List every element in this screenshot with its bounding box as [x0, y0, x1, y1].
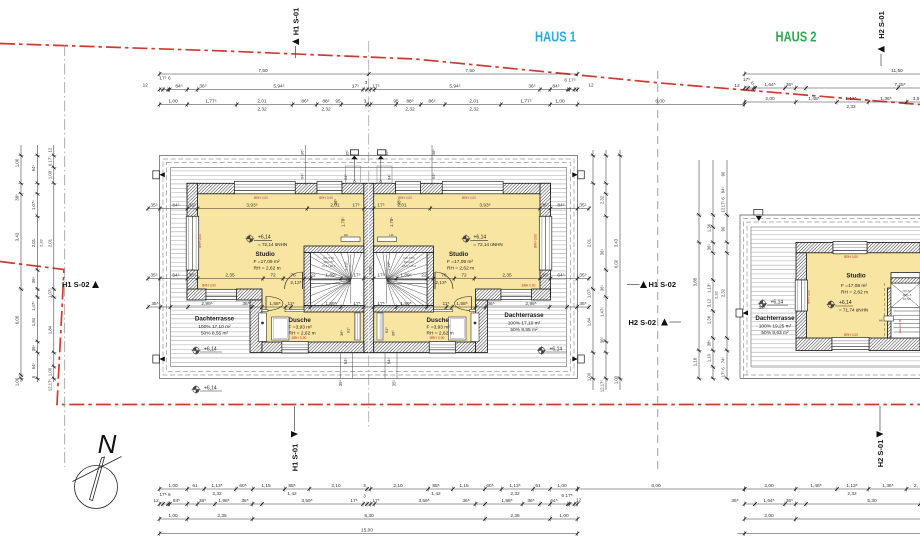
svg-text:2,32: 2,32: [847, 491, 857, 497]
svg-text:HAUS 1: HAUS 1: [535, 30, 576, 46]
svg-text:36⁵: 36⁵: [31, 345, 36, 352]
svg-text:1,13⁵: 1,13⁵: [846, 483, 857, 489]
svg-text:84⁵: 84⁵: [175, 84, 182, 90]
svg-text:2,13⁵: 2,13⁵: [290, 280, 301, 286]
svg-text:12,17⁵: 12,17⁵: [600, 380, 605, 392]
svg-text:1,13⁵: 1,13⁵: [509, 483, 520, 489]
svg-text:BRH 0,00: BRH 0,00: [807, 290, 811, 304]
svg-text:17⁵: 17⁵: [377, 203, 384, 209]
svg-text:1,00: 1,00: [587, 372, 592, 381]
svg-text:H1 S-02: H1 S-02: [62, 280, 90, 289]
svg-text:BRH 3,90: BRH 3,90: [292, 336, 307, 340]
svg-text:HK: HK: [389, 233, 393, 237]
svg-text:F =17,09 m²: F =17,09 m²: [447, 259, 473, 265]
svg-text:5,94⁵: 5,94⁵: [449, 84, 460, 90]
svg-text:BRH 0,00: BRH 0,00: [198, 234, 202, 248]
svg-text:3: 3: [364, 99, 367, 105]
svg-text:64⁵: 64⁵: [387, 358, 392, 365]
svg-text:6,00: 6,00: [655, 99, 665, 105]
svg-text:2,35: 2,35: [510, 513, 520, 519]
svg-text:2,32: 2,32: [39, 238, 44, 247]
svg-text:2,01: 2,01: [469, 99, 479, 105]
svg-text:36⁵: 36⁵: [600, 285, 605, 292]
svg-text:100% 17,10 m²: 100% 17,10 m²: [508, 321, 541, 327]
svg-text:1,89⁵: 1,89⁵: [400, 273, 411, 279]
svg-text:100% 19,25 m²: 100% 19,25 m²: [759, 324, 792, 330]
svg-text:1,47⁵: 1,47⁵: [600, 307, 605, 317]
svg-text:72: 72: [270, 273, 276, 279]
svg-text:16,5 / 25,0: 16,5 / 25,0: [402, 264, 417, 268]
svg-text:38⁵: 38⁵: [707, 340, 712, 347]
svg-text:6,00: 6,00: [15, 315, 20, 324]
svg-text:35⁵: 35⁵: [385, 150, 389, 156]
svg-text:1,00: 1,00: [47, 367, 52, 376]
svg-text:= 72,14 üNHN: = 72,14 üNHN: [474, 242, 503, 247]
svg-text:35⁵: 35⁵: [579, 273, 586, 279]
svg-text:1,00: 1,00: [557, 483, 567, 489]
svg-text:1,15: 1,15: [261, 483, 271, 489]
svg-text:1,58⁵: 1,58⁵: [269, 301, 280, 307]
svg-text:BRH 0,00: BRH 0,00: [319, 196, 333, 200]
svg-text:15,00: 15,00: [361, 528, 373, 534]
svg-text:84⁵: 84⁵: [172, 203, 179, 209]
svg-text:36⁵: 36⁵: [541, 203, 548, 209]
svg-text:64⁵: 64⁵: [31, 165, 36, 172]
svg-text:3,85: 3,85: [693, 277, 698, 286]
svg-text:95: 95: [393, 99, 399, 105]
svg-text:2,35: 2,35: [502, 273, 512, 279]
svg-text:36⁵: 36⁵: [528, 84, 535, 90]
svg-text:2,10: 2,10: [393, 483, 403, 489]
svg-text:3,93⁵: 3,93⁵: [479, 203, 490, 209]
svg-text:36⁵: 36⁵: [31, 277, 36, 284]
svg-text:16,5 / 25,0: 16,5 / 25,0: [321, 264, 336, 268]
svg-text:= 72,14 üNHN: = 72,14 üNHN: [258, 242, 287, 247]
svg-text:36⁵: 36⁵: [199, 84, 206, 90]
svg-text:1,36: 1,36: [707, 315, 712, 324]
svg-text:91⁵: 91⁵: [384, 327, 389, 333]
svg-text:1,00: 1,00: [555, 99, 565, 105]
svg-text:3,93⁵: 3,93⁵: [246, 203, 257, 209]
svg-text:2,32: 2,32: [405, 106, 415, 112]
svg-text:6,00: 6,00: [614, 259, 619, 268]
svg-text:+6,14: +6,14: [550, 346, 563, 352]
svg-text:38⁵: 38⁵: [15, 194, 20, 201]
svg-text:36⁵: 36⁵: [600, 337, 605, 344]
svg-text:35⁵: 35⁵: [759, 305, 766, 310]
svg-text:86⁵: 86⁵: [428, 99, 435, 105]
svg-text:36⁵: 36⁵: [600, 249, 605, 256]
svg-text:36⁵: 36⁵: [189, 273, 196, 279]
svg-text:2,35: 2,35: [225, 273, 235, 279]
svg-text:17⁵: 17⁵: [353, 273, 360, 279]
svg-text:1,89⁵: 1,89⁵: [325, 301, 336, 307]
svg-text:BRH 0,00: BRH 0,00: [844, 255, 858, 259]
svg-text:2,32: 2,32: [321, 106, 331, 112]
svg-text:3: 3: [363, 483, 366, 489]
svg-text:1,48⁵: 1,48⁵: [810, 483, 821, 489]
svg-text:35⁵: 35⁵: [151, 301, 158, 307]
svg-text:17⁵: 17⁵: [377, 273, 384, 279]
svg-text:1,47⁵: 1,47⁵: [31, 301, 36, 311]
svg-text:36⁵: 36⁵: [390, 330, 395, 336]
svg-text:50% 8,55 m²: 50% 8,55 m²: [201, 331, 229, 337]
svg-text:+6,14: +6,14: [474, 235, 487, 241]
svg-text:60⁵: 60⁵: [239, 483, 246, 489]
svg-text:Dachterrasse: Dachterrasse: [195, 316, 235, 323]
svg-text:2,32: 2,32: [600, 195, 605, 204]
svg-text:2,00: 2,00: [764, 513, 774, 519]
svg-text:1,13⁵: 1,13⁵: [211, 483, 222, 489]
svg-text:17⁵ 6: 17⁵ 6: [159, 76, 171, 82]
svg-text:64⁵: 64⁵: [172, 273, 179, 279]
svg-text:3: 3: [365, 80, 368, 86]
svg-text:5,30: 5,30: [867, 498, 877, 504]
svg-text:17⁵: 17⁵: [721, 371, 726, 378]
svg-text:6,00: 6,00: [651, 483, 661, 489]
svg-text:36⁵: 36⁵: [707, 244, 712, 251]
svg-text:2,00: 2,00: [764, 483, 774, 489]
svg-text:36⁵: 36⁵: [199, 498, 206, 504]
svg-text:BRH 0,00: BRH 0,00: [844, 333, 858, 337]
svg-text:6: 6: [751, 81, 754, 87]
svg-text:64⁵: 64⁵: [557, 273, 564, 279]
svg-text:61: 61: [535, 483, 541, 489]
svg-text:1,64⁵: 1,64⁵: [763, 498, 774, 504]
svg-text:88⁵: 88⁵: [288, 483, 295, 489]
svg-text:1,15: 1,15: [459, 483, 469, 489]
svg-text:17⁵: 17⁵: [352, 84, 359, 90]
svg-text:1,89⁵: 1,89⁵: [400, 301, 411, 307]
svg-text:36⁵: 36⁵: [786, 82, 793, 88]
svg-text:35⁵: 35⁵: [731, 498, 738, 504]
svg-text:72: 72: [461, 273, 467, 279]
svg-text:1,00: 1,00: [559, 513, 569, 519]
svg-text:1,00: 1,00: [15, 158, 20, 167]
svg-text:BRH 0,00: BRH 0,00: [462, 196, 476, 200]
svg-text:2,13⁵: 2,13⁵: [435, 280, 446, 286]
svg-text:64⁵: 64⁵: [343, 174, 348, 180]
svg-text:3,43: 3,43: [614, 238, 619, 247]
svg-text:22: 22: [421, 273, 427, 279]
svg-text:2,00: 2,00: [765, 96, 775, 102]
svg-text:12: 12: [576, 498, 582, 504]
svg-text:1,36⁵: 1,36⁵: [882, 483, 893, 489]
svg-text:+6,14: +6,14: [771, 299, 784, 305]
svg-text:60⁵: 60⁵: [486, 483, 493, 489]
svg-text:RH = 2,62 m: RH = 2,62 m: [447, 266, 474, 272]
svg-text:6 17⁵: 6 17⁵: [564, 78, 575, 84]
svg-text:3,5: 3,5: [913, 96, 920, 102]
svg-text:+6,14: +6,14: [839, 300, 852, 306]
svg-text:36⁵: 36⁵: [241, 498, 248, 504]
svg-text:1,10: 1,10: [707, 353, 712, 362]
svg-text:84⁵: 84⁵: [557, 203, 564, 209]
svg-text:1,84: 1,84: [47, 325, 52, 334]
svg-text:64⁵: 64⁵: [343, 358, 348, 365]
svg-text:12: 12: [143, 83, 149, 89]
svg-text:2,99⁵: 2,99⁵: [525, 301, 536, 307]
svg-text:Wand 0,00: Wand 0,00: [898, 318, 902, 333]
svg-text:Studio: Studio: [846, 273, 865, 280]
svg-text:17⁵: 17⁵: [377, 301, 384, 307]
svg-text:H2 S-02: H2 S-02: [629, 318, 657, 327]
svg-text:3,43: 3,43: [15, 232, 20, 241]
svg-text:6,17⁵: 6,17⁵: [47, 156, 52, 166]
svg-text:2,22⁵: 2,22⁵: [386, 261, 391, 271]
svg-text:8,30: 8,30: [364, 513, 374, 519]
svg-text:12: 12: [734, 83, 740, 89]
svg-text:12,17⁵: 12,17⁵: [47, 379, 52, 391]
svg-text:1,78⁵: 1,78⁵: [340, 217, 345, 227]
svg-text:1,36: 1,36: [707, 223, 712, 232]
svg-text:88⁵: 88⁵: [406, 99, 413, 105]
svg-text:2,32: 2,32: [212, 491, 222, 497]
svg-text:95: 95: [335, 99, 341, 105]
svg-text:1,13⁵: 1,13⁵: [707, 283, 712, 293]
svg-text:Studio: Studio: [449, 251, 468, 258]
svg-text:2,32: 2,32: [846, 104, 856, 110]
svg-text:Dachterrasse: Dachterrasse: [755, 315, 795, 322]
svg-text:35⁵: 35⁵: [579, 203, 586, 209]
svg-text:35⁵: 35⁵: [150, 203, 157, 209]
svg-text:64⁵: 64⁵: [31, 363, 36, 370]
svg-text:17⁵: 17⁵: [350, 498, 357, 504]
svg-text:1,07⁵: 1,07⁵: [47, 288, 52, 298]
svg-text:86⁵: 86⁵: [301, 99, 308, 105]
svg-text:1,77⁵: 1,77⁵: [520, 99, 531, 105]
svg-text:BRH 3,90: BRH 3,90: [430, 336, 445, 340]
svg-text:17⁵: 17⁵: [721, 201, 726, 208]
svg-text:38⁵: 38⁵: [333, 199, 338, 206]
svg-text:= 71,74 üNHN: = 71,74 üNHN: [839, 308, 868, 313]
svg-text:N: N: [98, 429, 117, 459]
svg-text:1,48⁵: 1,48⁵: [808, 96, 819, 102]
svg-text:90: 90: [721, 171, 726, 176]
svg-text:1,00: 1,00: [168, 513, 178, 519]
svg-text:+6,14: +6,14: [258, 235, 271, 241]
svg-text:H1 S-02: H1 S-02: [649, 280, 677, 289]
svg-text:64⁵: 64⁵: [300, 173, 305, 179]
svg-text:3,59⁵: 3,59⁵: [418, 498, 429, 504]
svg-text:1,00: 1,00: [15, 377, 20, 386]
svg-text:HK: HK: [344, 233, 348, 237]
svg-text:35⁵: 35⁵: [338, 380, 343, 387]
svg-text:90: 90: [721, 226, 726, 231]
svg-text:1,00: 1,00: [168, 99, 178, 105]
svg-text:36⁵: 36⁵: [462, 498, 469, 504]
svg-text:17⁵: 17⁵: [353, 301, 360, 307]
svg-text:2,32: 2,32: [721, 288, 726, 297]
svg-text:12: 12: [47, 147, 52, 152]
svg-text:2,01: 2,01: [587, 238, 592, 247]
svg-text:11,50: 11,50: [891, 68, 903, 74]
svg-text:1,84: 1,84: [31, 317, 36, 326]
svg-text:36⁵: 36⁵: [300, 149, 305, 155]
svg-text:F =3,93 m²: F =3,93 m²: [289, 325, 313, 331]
svg-text:2,: 2,: [914, 483, 918, 489]
svg-text:F =17,08 m²: F =17,08 m²: [841, 283, 867, 289]
svg-text:36⁵: 36⁵: [339, 330, 344, 336]
svg-text:2,01: 2,01: [47, 238, 52, 247]
svg-text:1,42: 1,42: [431, 491, 441, 497]
svg-text:7,50: 7,50: [465, 68, 475, 74]
svg-text:2,01: 2,01: [31, 238, 36, 247]
svg-text:17⁵: 17⁵: [352, 203, 359, 209]
svg-text:1,00: 1,00: [168, 483, 178, 489]
svg-text:BRH 0,00: BRH 0,00: [534, 234, 538, 248]
svg-text:64⁵: 64⁵: [386, 174, 391, 180]
svg-text:50% 8,55 m²: 50% 8,55 m²: [510, 327, 538, 333]
svg-text:3: 3: [363, 494, 366, 500]
svg-text:36⁵: 36⁵: [527, 498, 534, 504]
svg-text:1,78⁵: 1,78⁵: [389, 217, 394, 227]
svg-text:1,98⁵: 1,98⁵: [501, 498, 512, 504]
svg-text:1,00: 1,00: [47, 170, 52, 179]
svg-text:1,89⁵: 1,89⁵: [325, 273, 336, 279]
svg-text:11⁵: 11⁵: [443, 301, 450, 307]
svg-text:1,07⁵: 1,07⁵: [587, 288, 592, 298]
svg-text:2,32: 2,32: [714, 290, 719, 299]
svg-text:2,99⁵: 2,99⁵: [201, 301, 212, 307]
svg-text:17⁵: 17⁵: [372, 498, 379, 504]
svg-text:74⁵: 74⁵: [721, 357, 726, 364]
svg-text:7,50: 7,50: [258, 68, 268, 74]
svg-text:1,07⁵: 1,07⁵: [31, 200, 36, 210]
svg-text:1,58⁵: 1,58⁵: [456, 301, 467, 307]
svg-text:HAUS 2: HAUS 2: [776, 30, 817, 46]
svg-text:RH = 2,62 m: RH = 2,62 m: [841, 289, 868, 295]
svg-text:3,59⁵: 3,59⁵: [301, 498, 312, 504]
svg-text:22: 22: [310, 273, 316, 279]
svg-text:BRH 0,00: BRH 0,00: [202, 284, 216, 288]
svg-text:Dusche: Dusche: [427, 317, 450, 324]
svg-text:H2 S-01: H2 S-01: [876, 440, 885, 468]
svg-text:3,22⁵: 3,22⁵: [368, 265, 373, 275]
svg-text:84⁵: 84⁵: [552, 84, 559, 90]
svg-text:BRH 0,00: BRH 0,00: [254, 196, 268, 200]
svg-text:2,32: 2,32: [257, 106, 267, 112]
svg-text:2,01: 2,01: [257, 99, 267, 105]
svg-text:1,84: 1,84: [587, 317, 592, 326]
svg-text:88⁵: 88⁵: [322, 99, 329, 105]
svg-text:61: 61: [192, 483, 198, 489]
svg-text:35⁵: 35⁵: [346, 150, 350, 156]
svg-text:1,10: 1,10: [693, 357, 698, 366]
svg-text:100% 17,10 m²: 100% 17,10 m²: [198, 324, 231, 330]
svg-text:11⁵: 11⁵: [288, 301, 295, 307]
svg-text:64⁵: 64⁵: [550, 498, 557, 504]
svg-text:Studio: Studio: [256, 251, 275, 258]
svg-text:36⁵: 36⁵: [189, 203, 196, 209]
svg-text:2,32: 2,32: [469, 106, 479, 112]
svg-text:16,5/2: 16,5/2: [903, 297, 912, 301]
svg-text:HK: HK: [879, 319, 883, 323]
svg-text:88⁵: 88⁵: [432, 483, 439, 489]
svg-text:36⁵: 36⁵: [786, 498, 793, 504]
svg-text:3,12: 3,12: [707, 298, 712, 307]
svg-text:36⁵: 36⁵: [242, 301, 249, 307]
svg-text:2,35: 2,35: [217, 513, 227, 519]
svg-text:2,32: 2,32: [510, 491, 520, 497]
svg-text:64⁵: 64⁵: [173, 498, 180, 504]
svg-text:17⁵ 6: 17⁵ 6: [159, 492, 171, 498]
svg-text:1,98⁵: 1,98⁵: [218, 498, 229, 504]
svg-text:91⁵: 91⁵: [346, 327, 351, 333]
svg-text:+6,14: +6,14: [204, 346, 217, 352]
svg-text:BRH 0,00: BRH 0,00: [522, 284, 536, 288]
svg-text:F =17,09 m²: F =17,09 m²: [254, 259, 280, 265]
svg-text:Dusche: Dusche: [289, 317, 312, 324]
svg-text:H1 S-01: H1 S-01: [292, 8, 301, 36]
svg-text:RH = 2,62 m: RH = 2,62 m: [254, 266, 281, 272]
svg-text:2,10: 2,10: [331, 483, 341, 489]
svg-text:2,22⁵: 2,22⁵: [343, 261, 348, 271]
svg-text:Dachterrasse: Dachterrasse: [504, 312, 544, 319]
svg-text:1,42: 1,42: [287, 491, 297, 497]
svg-text:H2 S-01: H2 S-01: [877, 11, 886, 39]
svg-text:35⁵: 35⁵: [579, 301, 586, 307]
svg-text:76: 76: [290, 273, 296, 279]
svg-text:50% 9,63 m²: 50% 9,63 m²: [761, 330, 789, 336]
svg-text:1,77⁵: 1,77⁵: [205, 99, 216, 105]
svg-text:1,36⁵: 1,36⁵: [880, 96, 891, 102]
svg-text:BRH 0,00: BRH 0,00: [398, 196, 412, 200]
svg-text:35⁵: 35⁵: [392, 380, 397, 387]
svg-text:35⁵: 35⁵: [150, 273, 157, 279]
svg-text:36⁵: 36⁵: [487, 301, 494, 307]
svg-text:12: 12: [588, 83, 594, 89]
svg-text:17⁵: 17⁵: [372, 84, 379, 90]
svg-text:84⁵: 84⁵: [721, 187, 726, 194]
svg-text:17⁵: 17⁵: [743, 77, 750, 83]
svg-text:6 17⁵: 6 17⁵: [561, 493, 572, 499]
svg-text:36⁵: 36⁵: [541, 273, 548, 279]
svg-text:H1 S-01: H1 S-01: [291, 444, 300, 472]
svg-text:12: 12: [153, 498, 159, 504]
svg-text:5,94⁵: 5,94⁵: [273, 84, 284, 90]
svg-text:+6,14: +6,14: [204, 385, 217, 391]
svg-text:64⁵: 64⁵: [431, 173, 436, 179]
svg-text:1,00: 1,00: [614, 375, 619, 384]
svg-text:7,25⁵: 7,25⁵: [894, 82, 905, 88]
svg-text:76: 76: [441, 273, 447, 279]
svg-text:1,13⁵: 1,13⁵: [845, 96, 856, 102]
svg-text:1,64⁵: 1,64⁵: [764, 82, 775, 88]
svg-text:36⁵: 36⁵: [431, 149, 436, 155]
svg-text:F =3,93 m²: F =3,93 m²: [427, 325, 451, 331]
svg-text:12: 12: [721, 207, 726, 212]
